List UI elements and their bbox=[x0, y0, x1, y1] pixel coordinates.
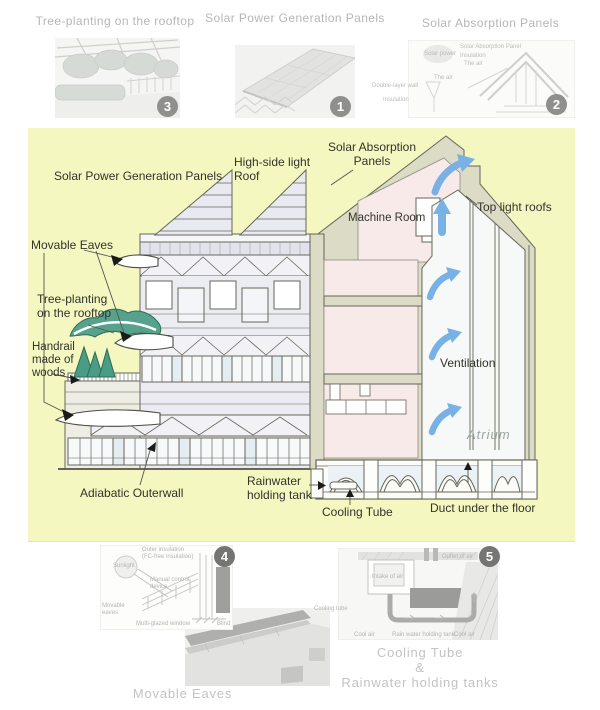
label-atrium: Atrium bbox=[467, 428, 511, 442]
badge-5: 5 bbox=[479, 546, 500, 567]
label-double-layer-wall: Double-layer wall bbox=[372, 83, 418, 90]
label-machine-room: Machine Room bbox=[348, 211, 425, 225]
label-high-side-line1: High-side light bbox=[234, 155, 310, 169]
caption-cooling-line3: Rainwater holding tanks bbox=[340, 675, 500, 690]
label-blind: Blind bbox=[217, 621, 230, 628]
label-adiabatic-outerwall: Adiabatic Outerwall bbox=[80, 486, 183, 500]
label-rainwater-holding-tank-small: Rain water holding tank bbox=[392, 632, 455, 639]
cooling-tube-diagram-sketch bbox=[338, 548, 498, 640]
caption-tree-planting: Tree-planting on the rooftop bbox=[30, 14, 200, 28]
label-ventilation: Ventilation bbox=[440, 356, 495, 370]
label-solar-power-panels: Solar Power Generation Panels bbox=[54, 169, 222, 183]
label-insulation-top: Insulation bbox=[460, 53, 486, 60]
caption-movable-eaves: Movable Eaves bbox=[120, 686, 245, 701]
label-multi-glazed-window: Multi-glazed window bbox=[136, 621, 190, 628]
caption-cooling-tube-tanks: Cooling Tube & Rainwater holding tanks bbox=[340, 645, 500, 690]
label-cool-air-1: Cool air bbox=[354, 632, 375, 639]
label-sunlight: Sunlight bbox=[113, 563, 135, 570]
label-tree-planting-line2: on the rooftop bbox=[37, 306, 111, 320]
label-handrail-line1: Handrail bbox=[32, 341, 75, 354]
label-outlet-of-air: Outlet of air bbox=[442, 554, 473, 561]
label-insulation-bottom: Insulation bbox=[383, 97, 409, 104]
label-intake-of-air: Intake of air bbox=[372, 574, 403, 581]
label-rainwater-tank: Rainwater holding tank bbox=[247, 474, 312, 502]
label-solar-absorption-line2: Panels bbox=[316, 154, 428, 168]
label-rainwater-line1: Rainwater bbox=[247, 474, 312, 488]
label-handrail: Handrail made of woods bbox=[32, 341, 75, 380]
caption-cooling-line1: Cooling Tube bbox=[340, 645, 500, 660]
label-cooling-tube: Cooling Tube bbox=[322, 505, 393, 519]
badge-2: 2 bbox=[546, 94, 567, 115]
figure-movable-eaves-diagram[interactable]: Outer insulation (FC-free insulation) Su… bbox=[100, 545, 233, 630]
label-fc-free: (FC-free insulation) bbox=[142, 554, 193, 561]
label-the-air-2: The air bbox=[434, 75, 453, 82]
label-movable-eaves-small: Movable eaves bbox=[102, 603, 132, 617]
badge-4: 4 bbox=[214, 546, 235, 567]
label-the-air-1: The air bbox=[464, 61, 483, 68]
label-duct-under-floor: Duct under the floor bbox=[430, 501, 535, 515]
label-top-light-roofs: Top light roofs bbox=[477, 200, 552, 214]
label-tree-planting-line1: Tree-planting bbox=[37, 292, 111, 306]
label-manual-control: Manual control device bbox=[150, 577, 198, 591]
figure-cooling-tube-diagram[interactable]: Intake of air Outlet of air Cooling tube… bbox=[338, 548, 498, 640]
main-eco-building-diagram: Solar Power Generation Panels High-side … bbox=[28, 128, 575, 542]
badge-3: 3 bbox=[157, 96, 178, 117]
label-tree-planting: Tree-planting on the rooftop bbox=[37, 292, 111, 320]
label-movable-eaves: Movable Eaves bbox=[31, 238, 113, 252]
label-rainwater-line2: holding tank bbox=[247, 488, 312, 502]
label-high-side-light-roof: High-side light Roof bbox=[234, 155, 310, 183]
label-solar-power-small: Solar power bbox=[424, 51, 456, 58]
label-absorption-panel: Solar Absorption Panel bbox=[460, 44, 521, 51]
label-high-side-line2: Roof bbox=[234, 169, 310, 183]
label-solar-absorption-line1: Solar Absorption bbox=[316, 140, 428, 154]
label-cool-air-2: Cool air bbox=[454, 632, 475, 639]
label-cooling-tube-small: Cooling tube bbox=[314, 606, 348, 613]
page: { "top_figures": [ { "caption": "Tree-pl… bbox=[0, 0, 600, 710]
caption-solar-power: Solar Power Generation Panels bbox=[205, 11, 385, 25]
caption-cooling-line2: & bbox=[340, 660, 500, 675]
badge-1: 1 bbox=[330, 96, 351, 117]
label-handrail-line3: woods bbox=[32, 367, 75, 380]
caption-solar-absorption: Solar Absorption Panels bbox=[408, 16, 573, 30]
label-handrail-line2: made of bbox=[32, 354, 75, 367]
label-solar-absorption-panels: Solar Absorption Panels bbox=[316, 140, 428, 168]
label-outer-insulation: Outer insulation bbox=[142, 547, 184, 554]
